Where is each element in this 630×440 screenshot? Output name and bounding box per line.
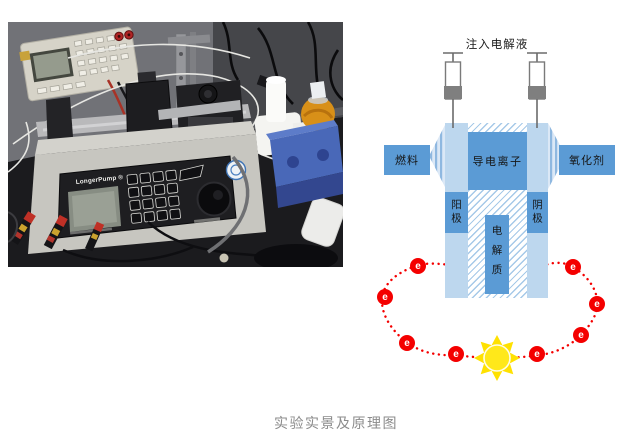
electron-badge: e [565, 259, 581, 275]
electrolyte-box: 电解质 [485, 215, 509, 294]
fuel-flow-triangle [429, 123, 446, 189]
bench-debris [220, 254, 229, 263]
oxidant-box: 氧化剂 [559, 145, 615, 175]
fuel-box: 燃料 [384, 145, 430, 175]
electron-badge: e [410, 258, 426, 274]
diagram-title: 注入电解液 [453, 36, 541, 52]
electron-badge: e [573, 327, 589, 343]
electron-badge: e [529, 346, 545, 362]
electron-badge: e [589, 296, 605, 312]
multimeter-label [19, 51, 30, 61]
electron-badge: e [448, 346, 464, 362]
electron-badge: e [377, 289, 393, 305]
cathode-box: 阴极 [527, 192, 548, 233]
conductive-ions-box: 导电离子 [468, 132, 527, 190]
figure-caption: 实验实景及原理图 [246, 413, 426, 433]
figure-canvas: LongerPump ® [0, 0, 630, 440]
pump-dial-knob [198, 183, 231, 216]
anode-box: 阳极 [445, 192, 468, 233]
lab-photo: LongerPump ® [8, 22, 343, 267]
electron-badge: e [399, 335, 415, 351]
